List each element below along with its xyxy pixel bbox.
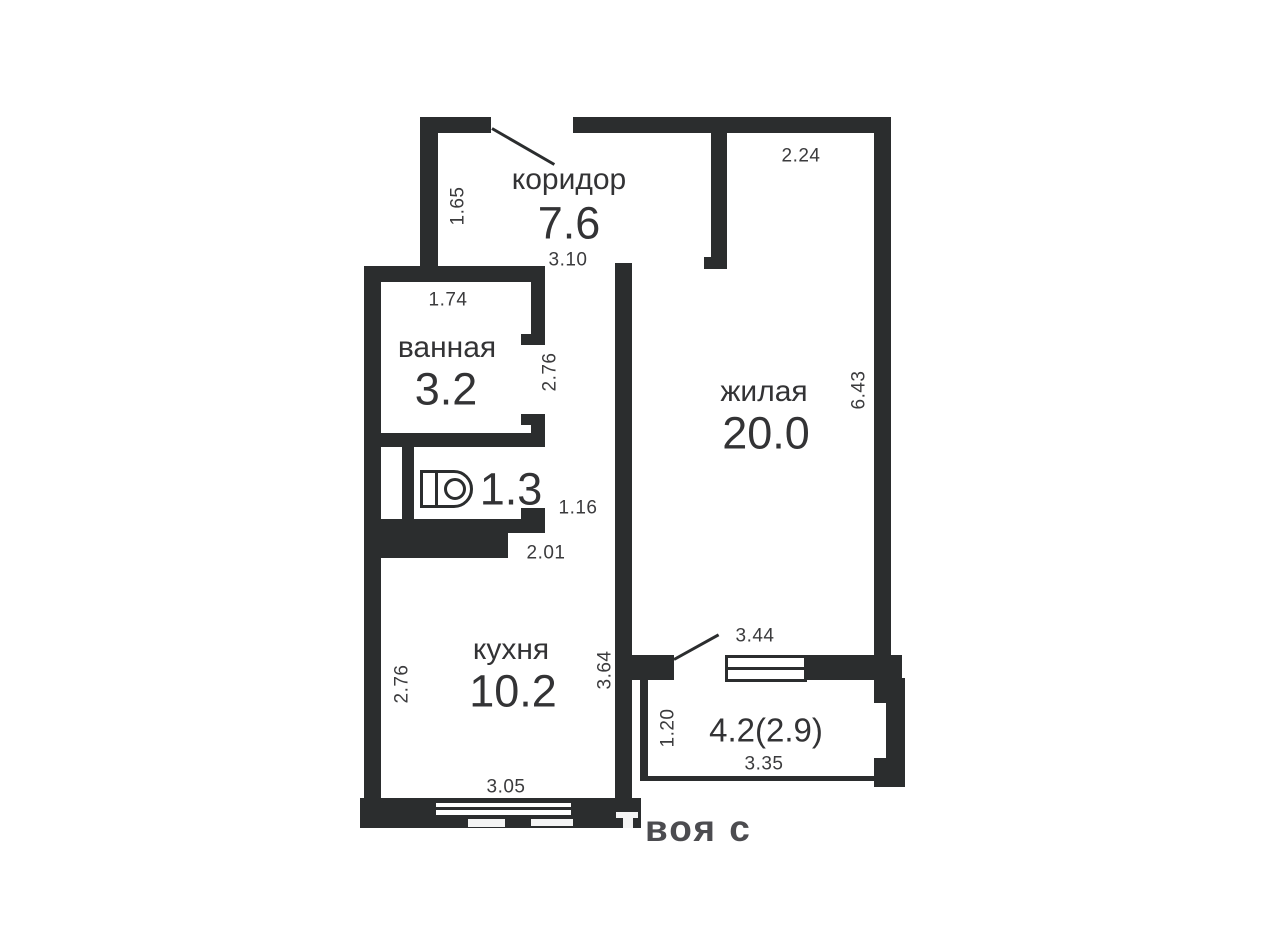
dim-corridor-left: 1.65 [449, 187, 468, 226]
wall-bath-door-jamb-top [521, 334, 545, 345]
dim-living-width: 3.44 [736, 627, 775, 646]
wall-stub-living-cap [704, 257, 727, 269]
wall-bath-right-upper [531, 282, 545, 334]
room-area-living: 20.0 [722, 411, 810, 456]
wall-toilet-bottom [381, 519, 545, 533]
wall-balcony-pillar-bot [874, 758, 905, 787]
wall-balcony-pillar-mid [886, 703, 905, 758]
kitchen-window [433, 800, 574, 818]
wall-stub-living [711, 133, 727, 263]
dim-bath-right: 2.76 [541, 353, 560, 392]
floor-plan: коридор 7.6 ванная 3.2 1.3 кухня 10.2 жи… [0, 0, 1262, 947]
dim-kitchen-left: 2.76 [393, 665, 412, 704]
watermark-fragment [623, 818, 633, 828]
watermark-fragment [468, 819, 505, 827]
wall-living-bottom-right [803, 655, 902, 680]
balcony-door-leader-line [673, 633, 719, 660]
window-frame-line [728, 667, 804, 670]
entry-door-leader-line [491, 127, 555, 166]
room-area-kitchen: 10.2 [469, 669, 557, 714]
dim-living-top: 2.24 [782, 147, 821, 166]
wall-kitchen-living [615, 263, 632, 818]
dim-kitchen-bottom: 3.05 [487, 778, 526, 797]
toilet-tank-line [435, 473, 438, 505]
room-area-toilet: 1.3 [480, 467, 543, 512]
dim-living-right: 6.43 [850, 371, 869, 410]
dim-kitchen-doorway: 2.01 [527, 544, 566, 563]
wall-corridor-left [420, 117, 438, 280]
wall-bath-top [364, 266, 545, 282]
wall-living-bottom-left [632, 655, 674, 680]
dim-balcony-width: 3.35 [745, 755, 784, 774]
wall-balcony-bottom [640, 776, 875, 781]
wall-top-main [573, 117, 891, 133]
dim-corridor-width: 3.10 [549, 251, 588, 270]
watermark-text: воя с [645, 810, 752, 847]
toilet-bowl-circle [444, 478, 466, 500]
room-label-bathroom: ванная [398, 333, 496, 363]
room-label-living: жилая [720, 377, 807, 407]
room-area-bathroom: 3.2 [415, 367, 478, 412]
room-label-kitchen: кухня [473, 635, 549, 665]
toilet-icon [420, 470, 473, 508]
wall-balcony-left [640, 680, 648, 780]
wall-outer-left [364, 266, 381, 798]
wall-balcony-pillar-top [874, 678, 905, 703]
watermark-fragment [531, 819, 573, 826]
dim-toilet-door: 1.16 [559, 499, 598, 518]
room-label-corridor: коридор [512, 165, 626, 195]
dim-balcony-height: 1.20 [659, 709, 678, 748]
room-area-corridor: 7.6 [538, 201, 601, 246]
wall-toilet-shaft [402, 447, 414, 521]
wall-outer-right [874, 117, 891, 680]
dim-kitchen-right: 3.64 [596, 651, 615, 690]
wall-kitchen-top [381, 533, 508, 558]
dim-bath-width: 1.74 [429, 291, 468, 310]
balcony-window [725, 655, 807, 682]
window-frame-line [436, 807, 571, 810]
room-area-balcony: 4.2(2.9) [709, 714, 823, 747]
wall-bath-bottom [364, 433, 545, 447]
